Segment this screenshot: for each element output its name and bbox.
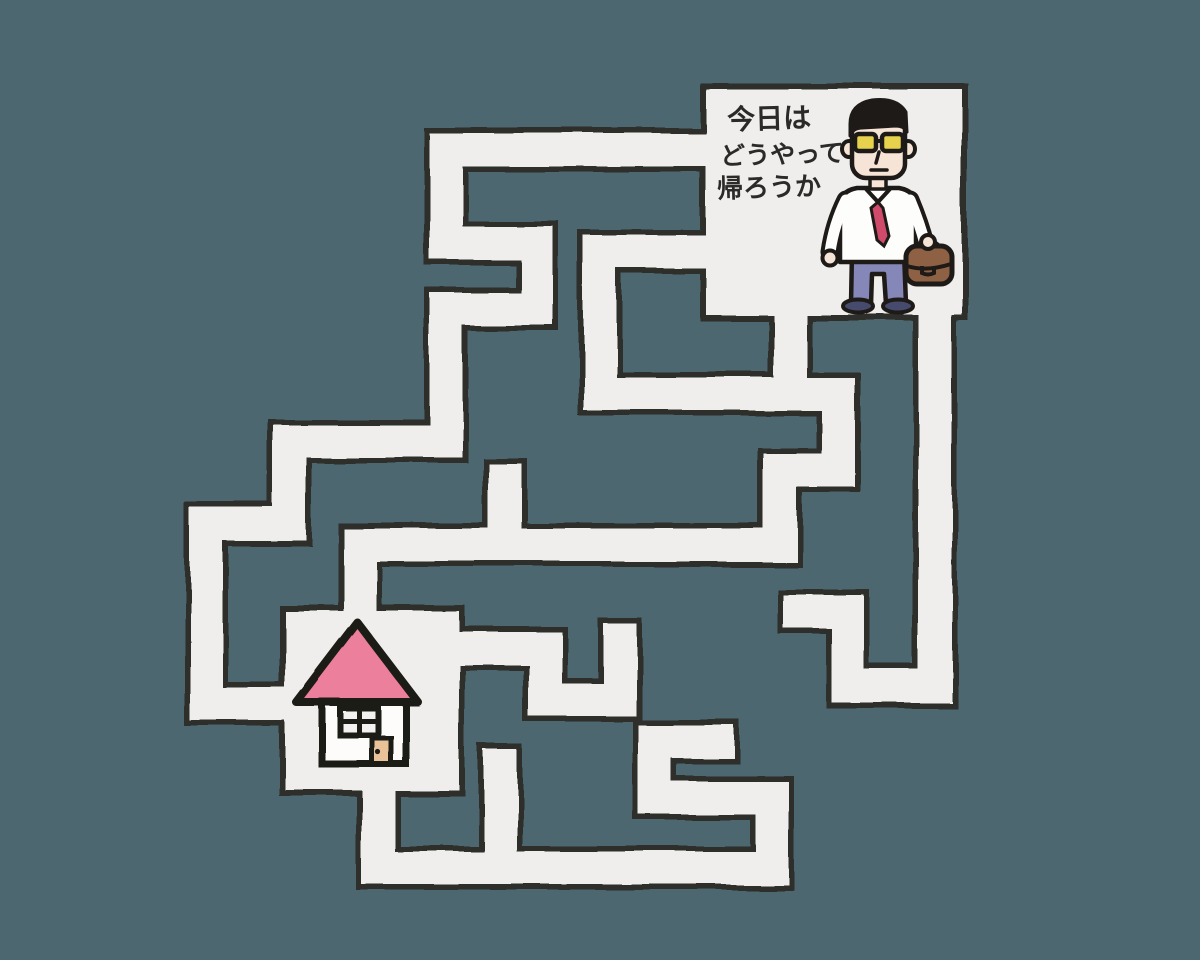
maze-canvas: 今日は どうやって 帰ろうか — [0, 0, 1200, 960]
businessman-glasses-lens-left — [855, 134, 876, 151]
speech-line-3: 帰ろうか — [717, 171, 822, 204]
corridor-right-column-outline — [800, 312, 935, 686]
businessman-shoe-left — [843, 300, 873, 313]
businessman-left-hand — [823, 251, 838, 266]
house-door — [372, 738, 391, 764]
businessman-right-hand — [921, 235, 935, 249]
house-door-knob — [375, 749, 380, 754]
speech-line-1: 今日は — [727, 101, 812, 135]
speech-line-2: どうやって — [720, 139, 844, 170]
maze-illustration: 今日は どうやって 帰ろうか — [0, 0, 1200, 960]
businessman-glasses-lens-right — [882, 134, 903, 151]
businessman-shoe-right — [883, 300, 913, 313]
